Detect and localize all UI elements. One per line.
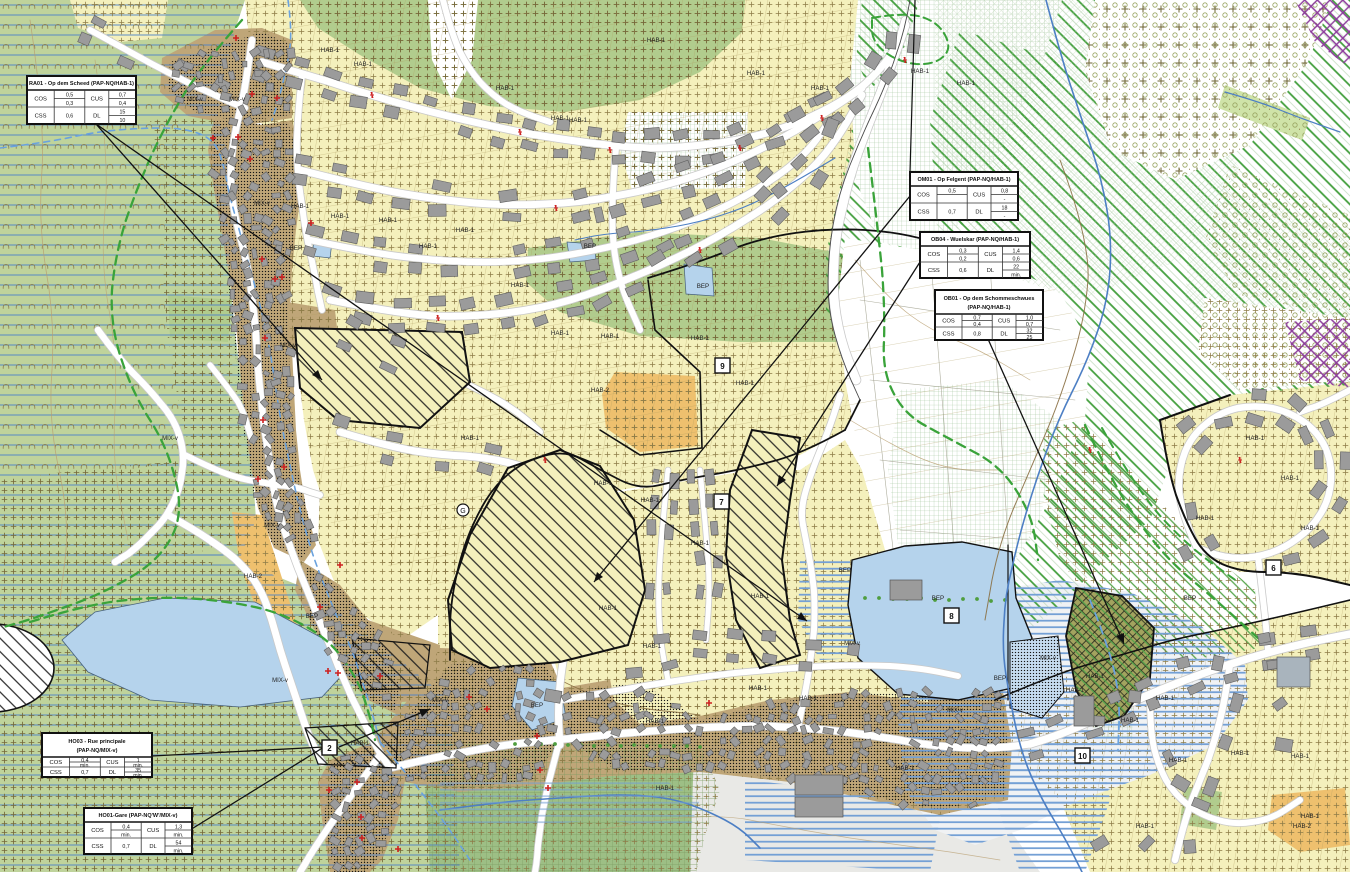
svg-text:0,6: 0,6 <box>959 268 966 274</box>
svg-text:HAB-1: HAB-1 <box>1156 695 1175 702</box>
svg-text:HAB-2: HAB-2 <box>591 387 610 394</box>
svg-text:CUS: CUS <box>973 193 985 199</box>
svg-text:0,4: 0,4 <box>122 824 129 830</box>
svg-text:CUS: CUS <box>984 252 996 258</box>
svg-text:32: 32 <box>1027 329 1033 335</box>
svg-text:BEP: BEP <box>531 702 543 709</box>
svg-text:HAB-1: HAB-1 <box>599 605 618 612</box>
svg-text:OB04 - Wuelskar (PAP-NQ/HAB-1): OB04 - Wuelskar (PAP-NQ/HAB-1) <box>931 237 1019 243</box>
svg-text:HAB-1: HAB-1 <box>594 480 613 487</box>
svg-text:HAB-1: HAB-1 <box>1291 753 1310 760</box>
svg-text:DL: DL <box>987 268 995 274</box>
svg-text:0,2: 0,2 <box>959 256 966 262</box>
svg-text:MIX-v: MIX-v <box>187 97 203 103</box>
svg-text:HAB-1: HAB-1 <box>601 333 620 340</box>
svg-text:HAB-1: HAB-1 <box>1066 687 1085 694</box>
svg-text:HAB-1: HAB-1 <box>691 540 710 547</box>
svg-text:0,7: 0,7 <box>948 210 955 216</box>
svg-text:HAB-1: HAB-1 <box>1086 673 1105 680</box>
svg-text:HAB-1: HAB-1 <box>647 37 666 44</box>
svg-text:0,7: 0,7 <box>122 844 129 850</box>
svg-text:8: 8 <box>949 612 954 621</box>
svg-text:0,6: 0,6 <box>66 114 73 120</box>
svg-text:BEP: BEP <box>306 613 318 620</box>
svg-text:HAB-1: HAB-1 <box>646 718 665 725</box>
svg-text:MIX-v: MIX-v <box>947 708 963 714</box>
svg-text:CUS: CUS <box>147 828 159 834</box>
svg-text:BEP: BEP <box>697 283 709 290</box>
svg-text:HAB-1: HAB-1 <box>641 497 660 504</box>
svg-text:DL: DL <box>975 210 983 216</box>
svg-text:HAB-1: HAB-1 <box>551 115 570 122</box>
svg-text:HAB-1: HAB-1 <box>751 593 770 600</box>
svg-text:HAB-1: HAB-1 <box>456 227 475 234</box>
svg-text:MIX-v: MIX-v <box>254 201 270 207</box>
svg-text:HAB-1: HAB-1 <box>1169 757 1188 764</box>
svg-text:OM01 - Op Felgent (PAP-NQ/HAB-: OM01 - Op Felgent (PAP-NQ/HAB-1) <box>917 177 1010 183</box>
svg-text:CSS: CSS <box>92 844 104 850</box>
svg-text:BEP: BEP <box>290 245 302 252</box>
svg-text:0,8: 0,8 <box>1001 189 1008 195</box>
svg-text:HAB-1: HAB-1 <box>1231 750 1250 757</box>
svg-text:18: 18 <box>1002 206 1008 212</box>
svg-text:G: G <box>460 508 465 515</box>
svg-text:CSS: CSS <box>35 114 47 120</box>
svg-text:HAB-1: HAB-1 <box>747 70 766 77</box>
svg-text:HAB-1: HAB-1 <box>461 435 480 442</box>
svg-text:HAB-1: HAB-1 <box>1301 525 1320 532</box>
svg-text:9: 9 <box>720 362 725 371</box>
svg-text:HAB-1: HAB-1 <box>551 330 570 337</box>
svg-text:(PAP-NQ/MIX-v): (PAP-NQ/MIX-v) <box>77 748 118 754</box>
svg-text:min.: min. <box>80 763 90 769</box>
svg-text:HO01-Gare (PAP-NQ'W'/MIX-v): HO01-Gare (PAP-NQ'W'/MIX-v) <box>99 813 178 819</box>
svg-text:0,7: 0,7 <box>81 770 88 776</box>
svg-text:MIX-v: MIX-v <box>844 641 860 647</box>
svg-text:HAB-1: HAB-1 <box>1196 515 1215 522</box>
svg-text:CSS: CSS <box>928 268 940 274</box>
svg-text:HAB-2: HAB-2 <box>1293 823 1312 830</box>
svg-text:DL: DL <box>93 114 101 120</box>
svg-text:7: 7 <box>719 498 724 507</box>
svg-text:DL: DL <box>109 770 117 776</box>
svg-text:HAB-1: HAB-1 <box>511 282 530 289</box>
svg-text:CSS: CSS <box>943 332 955 338</box>
svg-text:HAB-1: HAB-1 <box>419 243 438 250</box>
svg-text:HAB-1: HAB-1 <box>569 117 588 124</box>
svg-text:HAB-1: HAB-1 <box>379 217 398 224</box>
svg-text:MIX-v: MIX-v <box>432 698 448 704</box>
svg-text:HAB-2: HAB-2 <box>244 573 263 580</box>
svg-text:BEP: BEP <box>839 567 851 574</box>
svg-text:min.: min. <box>1011 272 1021 278</box>
svg-text:10: 10 <box>1078 752 1087 761</box>
svg-text:COS: COS <box>50 760 63 766</box>
svg-text:HAB-1: HAB-1 <box>1301 813 1320 820</box>
svg-text:HAB-1: HAB-1 <box>811 85 830 92</box>
svg-text:DL: DL <box>1000 332 1008 338</box>
svg-text:1,3: 1,3 <box>175 824 182 830</box>
svg-text:HAB-1: HAB-1 <box>643 643 662 650</box>
svg-text:HAB-1: HAB-1 <box>691 335 710 342</box>
svg-text:min.: min. <box>121 832 131 838</box>
svg-text:CUS: CUS <box>998 319 1010 325</box>
svg-text:HAB-1: HAB-1 <box>321 47 340 54</box>
svg-text:HAB-1: HAB-1 <box>1281 475 1300 482</box>
svg-text:RA01 - Op dem Scheed (PAP-NQ/H: RA01 - Op dem Scheed (PAP-NQ/HAB-1) <box>29 81 134 87</box>
svg-text:min.: min. <box>173 832 183 838</box>
svg-text:15: 15 <box>119 110 125 116</box>
svg-text:HAB-1: HAB-1 <box>351 740 370 747</box>
svg-text:6: 6 <box>1271 564 1276 573</box>
svg-text:0,3: 0,3 <box>959 248 966 254</box>
svg-text:HAB-1: HAB-1 <box>354 61 373 68</box>
svg-text:min.: min. <box>173 848 183 854</box>
svg-text:0,5: 0,5 <box>66 93 73 99</box>
svg-text:BEP: BEP <box>1184 595 1196 602</box>
svg-text:HAB-1: HAB-1 <box>291 203 310 210</box>
svg-text:0,3: 0,3 <box>66 101 73 107</box>
svg-text:HAB-1: HAB-1 <box>799 695 818 702</box>
svg-text:MIX-v: MIX-v <box>229 97 245 103</box>
svg-text:min.: min. <box>133 773 143 779</box>
svg-text:MIX-v: MIX-v <box>264 523 280 529</box>
svg-text:HAB-1: HAB-1 <box>736 380 755 387</box>
svg-text:BEP: BEP <box>584 243 596 250</box>
svg-text:HAB-1: HAB-1 <box>896 765 915 772</box>
svg-text:DL: DL <box>149 844 157 850</box>
svg-text:HAB-1: HAB-1 <box>496 85 515 92</box>
svg-text:MIX-v: MIX-v <box>280 343 296 349</box>
svg-text:0,7: 0,7 <box>973 316 980 322</box>
svg-text:OB01 - Op dem Schommeschwues: OB01 - Op dem Schommeschwues <box>944 296 1035 302</box>
svg-text:CSS: CSS <box>918 210 930 216</box>
svg-text:HAB-1: HAB-1 <box>911 68 930 75</box>
svg-text:0,4: 0,4 <box>119 101 126 107</box>
svg-text:HAB-1: HAB-1 <box>1136 823 1155 830</box>
svg-text:MIX-v: MIX-v <box>1040 656 1056 662</box>
svg-text:-: - <box>1004 214 1006 220</box>
svg-text:10: 10 <box>119 118 125 124</box>
svg-text:COS: COS <box>34 97 47 103</box>
svg-text:25: 25 <box>1027 335 1033 341</box>
svg-text:(PAP-NQ/HAB-1): (PAP-NQ/HAB-1) <box>968 305 1011 311</box>
svg-text:HAB-1: HAB-1 <box>749 685 768 692</box>
svg-text:1,0: 1,0 <box>1026 316 1033 322</box>
svg-text:HO03 - Rue principale: HO03 - Rue principale <box>68 739 125 745</box>
svg-text:CUS: CUS <box>106 760 118 766</box>
svg-text:HAB-1: HAB-1 <box>1246 435 1265 442</box>
svg-text:HAB-1: HAB-1 <box>957 80 976 87</box>
svg-text:22: 22 <box>1013 264 1019 270</box>
svg-text:0,5: 0,5 <box>948 189 955 195</box>
svg-text:MIX-v: MIX-v <box>272 678 288 684</box>
svg-text:BEP: BEP <box>994 675 1006 682</box>
svg-text:BEP: BEP <box>932 595 944 602</box>
svg-text:-: - <box>1004 197 1006 203</box>
svg-text:0,7: 0,7 <box>119 93 126 99</box>
svg-text:CSS: CSS <box>50 770 62 776</box>
svg-text:0,4: 0,4 <box>973 322 980 328</box>
svg-text:COS: COS <box>928 252 941 258</box>
svg-text:HAB-1: HAB-1 <box>1121 717 1140 724</box>
svg-text:MIX-v: MIX-v <box>162 436 178 442</box>
svg-text:0,7: 0,7 <box>1026 322 1033 328</box>
svg-text:CUS: CUS <box>91 97 103 103</box>
svg-text:2: 2 <box>327 744 332 753</box>
svg-text:1,4: 1,4 <box>1013 248 1020 254</box>
svg-text:0,6: 0,6 <box>1013 256 1020 262</box>
svg-text:COS: COS <box>91 828 104 834</box>
svg-text:0,8: 0,8 <box>973 332 980 338</box>
svg-text:HAB-1: HAB-1 <box>656 785 675 792</box>
svg-text:54: 54 <box>176 840 182 846</box>
svg-text:HAB-1: HAB-1 <box>331 213 350 220</box>
svg-text:COS: COS <box>942 319 955 325</box>
svg-text:COS: COS <box>917 193 930 199</box>
